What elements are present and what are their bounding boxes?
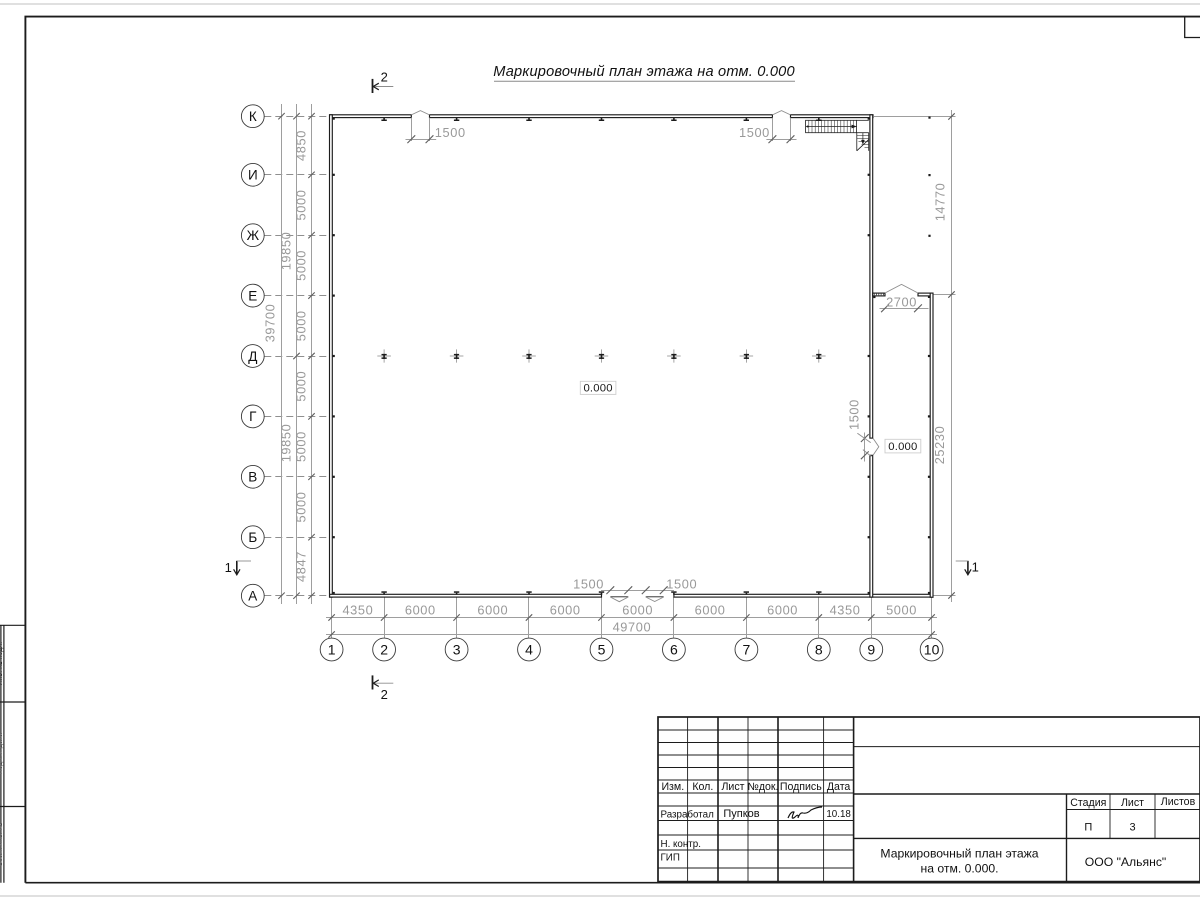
svg-text:1500: 1500 — [573, 576, 604, 591]
svg-text:Инв. № подл.: Инв. № подл. — [0, 642, 4, 686]
svg-text:5000: 5000 — [293, 250, 308, 281]
svg-text:Маркировочный план этажа на от: Маркировочный план этажа на отм. 0.000 — [493, 64, 795, 80]
svg-text:5000: 5000 — [293, 431, 308, 462]
svg-text:4847: 4847 — [293, 551, 308, 582]
svg-text:Подпись: Подпись — [780, 781, 822, 793]
svg-text:Н. контр.: Н. контр. — [661, 839, 701, 850]
svg-text:№док.: №док. — [747, 781, 778, 793]
svg-text:25230: 25230 — [932, 426, 947, 465]
svg-text:5: 5 — [598, 642, 606, 658]
svg-text:4350: 4350 — [342, 603, 373, 618]
svg-text:5000: 5000 — [293, 310, 308, 341]
svg-text:6000: 6000 — [405, 603, 436, 618]
svg-text:4850: 4850 — [293, 130, 308, 161]
svg-text:5000: 5000 — [293, 492, 308, 523]
svg-text:П: П — [1084, 822, 1092, 834]
svg-text:В: В — [248, 470, 257, 485]
svg-text:3: 3 — [453, 642, 461, 658]
svg-text:Разработал: Разработал — [661, 810, 715, 821]
svg-text:Листов: Листов — [1161, 796, 1196, 808]
svg-text:Подп. и дата: Подп. и дата — [0, 733, 4, 774]
svg-text:19850: 19850 — [278, 232, 293, 271]
svg-text:Взам. инв. №: Взам. инв. № — [0, 823, 4, 866]
svg-text:Лист: Лист — [1121, 797, 1144, 809]
svg-text:Дата: Дата — [827, 781, 851, 793]
svg-text:5000: 5000 — [293, 190, 308, 221]
svg-text:19850: 19850 — [278, 424, 293, 463]
svg-text:4: 4 — [525, 642, 533, 658]
svg-text:ГИП: ГИП — [661, 853, 680, 864]
svg-text:1500: 1500 — [739, 125, 770, 140]
svg-text:49700: 49700 — [613, 619, 652, 634]
svg-text:4350: 4350 — [830, 603, 861, 618]
svg-text:6000: 6000 — [695, 603, 726, 618]
svg-text:7: 7 — [743, 642, 751, 658]
svg-text:Д: Д — [248, 349, 257, 364]
svg-text:2700: 2700 — [886, 295, 917, 310]
svg-text:1: 1 — [225, 560, 232, 575]
svg-text:2: 2 — [381, 687, 388, 702]
svg-text:Лист: Лист — [721, 781, 744, 793]
svg-text:А: А — [248, 589, 257, 604]
svg-text:6000: 6000 — [767, 603, 798, 618]
svg-text:Кол.: Кол. — [692, 781, 713, 793]
svg-text:6000: 6000 — [477, 603, 508, 618]
svg-text:Изм.: Изм. — [661, 781, 684, 793]
svg-text:6: 6 — [670, 642, 678, 658]
svg-text:Г: Г — [249, 409, 257, 424]
svg-text:1500: 1500 — [435, 125, 466, 140]
svg-text:1500: 1500 — [666, 576, 697, 591]
svg-text:39700: 39700 — [262, 304, 277, 343]
svg-text:Ж: Ж — [247, 228, 260, 243]
svg-text:10.18: 10.18 — [826, 809, 851, 820]
svg-text:10: 10 — [924, 642, 940, 658]
svg-text:2: 2 — [380, 642, 388, 658]
svg-text:И: И — [248, 168, 258, 183]
svg-text:6000: 6000 — [550, 603, 581, 618]
svg-text:1500: 1500 — [847, 399, 862, 430]
svg-text:8: 8 — [815, 642, 823, 658]
svg-text:Пупков: Пупков — [723, 808, 759, 820]
svg-text:Е: Е — [248, 288, 257, 303]
svg-text:ООО "Альянс": ООО "Альянс" — [1085, 855, 1167, 869]
svg-text:3: 3 — [1129, 822, 1135, 834]
svg-text:2: 2 — [381, 69, 388, 84]
svg-text:9: 9 — [867, 642, 875, 658]
svg-text:14770: 14770 — [933, 183, 948, 222]
svg-text:Маркировочный план этажа: Маркировочный план этажа — [880, 847, 1038, 861]
svg-text:1: 1 — [328, 642, 336, 658]
svg-text:Стадия: Стадия — [1070, 797, 1106, 809]
svg-text:1: 1 — [972, 560, 979, 575]
svg-text:0.000: 0.000 — [583, 383, 612, 395]
svg-text:на отм. 0.000.: на отм. 0.000. — [920, 862, 998, 876]
svg-text:5000: 5000 — [293, 371, 308, 402]
svg-text:0.000: 0.000 — [888, 441, 917, 453]
svg-text:6000: 6000 — [622, 603, 653, 618]
svg-text:К: К — [249, 109, 257, 124]
svg-text:Б: Б — [248, 530, 257, 545]
svg-text:5000: 5000 — [886, 603, 917, 618]
